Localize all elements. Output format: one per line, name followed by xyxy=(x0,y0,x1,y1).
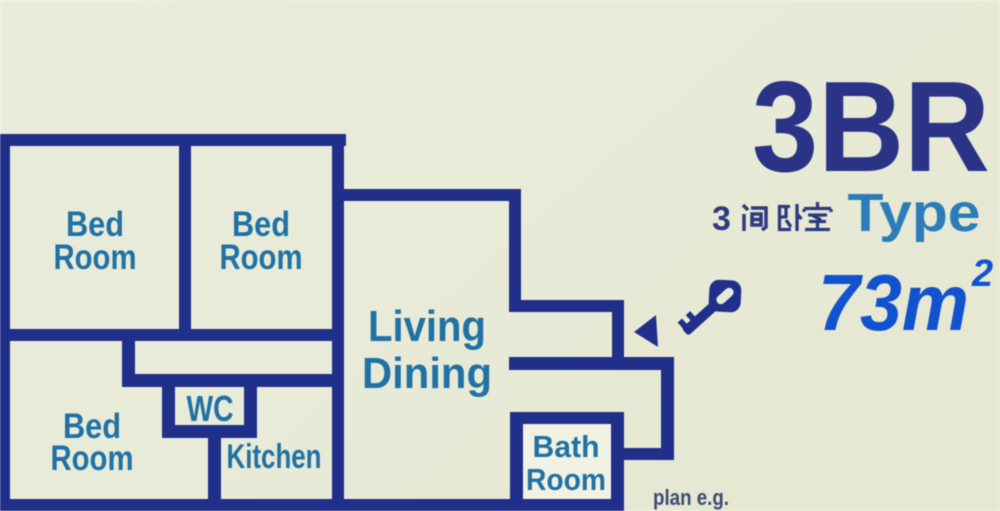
svg-text:Room: Room xyxy=(54,238,137,277)
svg-text:Living: Living xyxy=(368,302,486,351)
svg-text:Dining: Dining xyxy=(362,349,492,398)
svg-text:Room: Room xyxy=(526,462,606,497)
svg-text:Kitchen: Kitchen xyxy=(227,438,322,476)
svg-text:Room: Room xyxy=(220,238,303,277)
svg-text:Room: Room xyxy=(51,439,134,478)
svg-text:plan e.g.: plan e.g. xyxy=(653,485,729,510)
svg-text:Type: Type xyxy=(848,183,981,243)
svg-text:2: 2 xyxy=(971,253,993,295)
svg-text:3BR: 3BR xyxy=(752,55,990,199)
svg-text:WC: WC xyxy=(187,388,234,429)
svg-text:3: 3 xyxy=(712,200,731,238)
svg-text:Bath: Bath xyxy=(533,429,600,464)
svg-text:73m: 73m xyxy=(818,258,969,347)
